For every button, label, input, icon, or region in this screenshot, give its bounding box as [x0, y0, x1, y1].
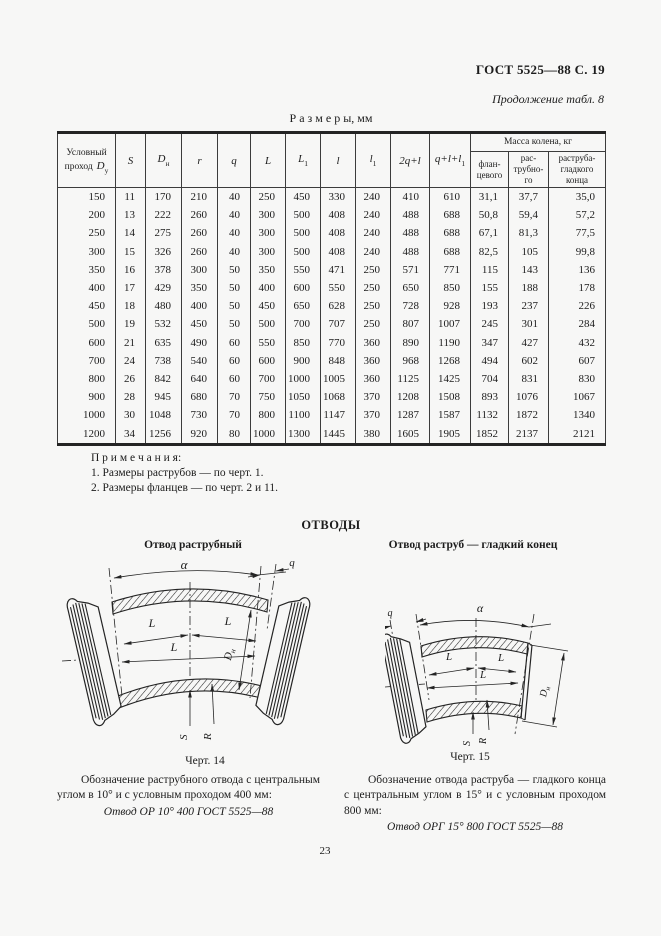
table-cell: 1208	[391, 388, 430, 406]
page-number: 23	[300, 845, 350, 857]
table-cell: 1125	[391, 370, 430, 388]
table-row: 250142752604030050040824048868867,181,37…	[58, 224, 606, 242]
table-cell: 13	[116, 206, 146, 224]
table-cell: 50	[218, 315, 251, 333]
gost-header: ГОСТ 5525—88 С. 19	[476, 62, 605, 78]
table-cell: 494	[471, 352, 509, 370]
table-cell: 640	[182, 370, 218, 388]
dim-label-L: L	[148, 616, 156, 630]
table-cell: 136	[549, 261, 606, 279]
figure-left-subtitle: Отвод раструбный	[118, 539, 268, 551]
table-cell: 240	[356, 243, 391, 261]
table-cell: 70	[218, 406, 251, 424]
table-cell: 31,1	[471, 188, 509, 207]
table-cell: 945	[146, 388, 182, 406]
table-cell: 1508	[430, 388, 471, 406]
note-item: 1. Размеры раструбов — по черт. 1.	[91, 466, 278, 481]
table-cell: 650	[391, 279, 430, 297]
table-cell: 432	[549, 334, 606, 352]
col-header-s: S	[116, 133, 146, 188]
table-cell: 1000	[58, 406, 116, 424]
table-cell: 410	[391, 188, 430, 207]
table-cell: 250	[356, 297, 391, 315]
col-header-q: q	[218, 133, 251, 188]
col-header-dn: Dн	[146, 133, 182, 188]
table-cell: 900	[286, 352, 321, 370]
table-cell: 115	[471, 261, 509, 279]
table-cell: 550	[251, 334, 286, 352]
table-cell: 1005	[321, 370, 356, 388]
table-cell: 700	[251, 370, 286, 388]
table-row: 1200341256920801000130014453801605190518…	[58, 424, 606, 444]
figure-socket-plain-bend-drawing: q α L L L Dн S R	[385, 574, 580, 752]
dimensions-table: Условный проход Dу S Dн r q L L1 l l1 2q…	[57, 131, 606, 446]
section-title-otvody: ОТВОДЫ	[57, 518, 605, 533]
table-cell: 800	[251, 406, 286, 424]
table-cell: 50	[218, 261, 251, 279]
table-cell: 15	[116, 243, 146, 261]
table-cell: 380	[356, 424, 391, 444]
table-row: 150111702104025045033024041061031,137,73…	[58, 188, 606, 207]
col-header-r: r	[182, 133, 218, 188]
dim-label-q: q	[388, 608, 393, 619]
table-cell: 408	[321, 206, 356, 224]
table-cell: 40	[218, 224, 251, 242]
dim-label-R: R	[478, 738, 489, 745]
table-cell: 200	[58, 206, 116, 224]
table-cell: 226	[549, 297, 606, 315]
table-cell: 1605	[391, 424, 430, 444]
col-header-mass-group: Масса колена, кг	[471, 133, 606, 152]
table-cell: 540	[182, 352, 218, 370]
table-cell: 650	[286, 297, 321, 315]
table-cell: 222	[146, 206, 182, 224]
designation-example: Отвод ОР 10° 400 ГОСТ 5525—88	[57, 805, 320, 820]
table-cell: 730	[182, 406, 218, 424]
table-cell: 830	[549, 370, 606, 388]
table-cell: 1445	[321, 424, 356, 444]
designation-text: Обозначение отвода раструба — гладкого к…	[344, 773, 606, 819]
table-cell: 607	[549, 352, 606, 370]
table-cell: 260	[182, 243, 218, 261]
table-cell: 900	[58, 388, 116, 406]
table-cell: 250	[251, 188, 286, 207]
table-cell: 81,3	[509, 224, 549, 242]
table-cell: 688	[430, 206, 471, 224]
table-cell: 80	[218, 424, 251, 444]
socket-right	[253, 592, 312, 725]
table-cell: 500	[286, 224, 321, 242]
table-cell: 370	[356, 388, 391, 406]
notes-block: П р и м е ч а н и я: 1. Размеры раструбо…	[91, 451, 278, 496]
table-row: 4001742935050400600550250650850155188178	[58, 279, 606, 297]
table-cell: 284	[549, 315, 606, 333]
table-cell: 210	[182, 188, 218, 207]
table-cell: 842	[146, 370, 182, 388]
dim-label-L: L	[224, 614, 232, 628]
table-cell: 831	[509, 370, 549, 388]
table-cell: 347	[471, 334, 509, 352]
table-cell: 488	[391, 243, 430, 261]
table-cell: 488	[391, 206, 430, 224]
table-cell: 704	[471, 370, 509, 388]
table-cell: 532	[146, 315, 182, 333]
table-cell: 16	[116, 261, 146, 279]
table-cell: 70	[218, 388, 251, 406]
table-cell: 550	[321, 279, 356, 297]
table-cell: 18	[116, 297, 146, 315]
table-cell: 260	[182, 224, 218, 242]
table-cell: 240	[356, 224, 391, 242]
table-cell: 330	[321, 188, 356, 207]
table-row: 300153262604030050040824048868882,510599…	[58, 243, 606, 261]
table-cell: 1048	[146, 406, 182, 424]
table-cell: 170	[146, 188, 182, 207]
col-header-L: L	[251, 133, 286, 188]
table-row: 9002894568070750105010683701208150889310…	[58, 388, 606, 406]
table-row: 5001953245050500700707250807100724530128…	[58, 315, 606, 333]
table-cell: 1256	[146, 424, 182, 444]
table-row: 4501848040050450650628250728928193237226	[58, 297, 606, 315]
table-cell: 928	[430, 297, 471, 315]
table-cell: 500	[58, 315, 116, 333]
table-cell: 178	[549, 279, 606, 297]
table-cell: 1076	[509, 388, 549, 406]
table-cell: 188	[509, 279, 549, 297]
table-cell: 300	[251, 243, 286, 261]
table-cell: 450	[182, 315, 218, 333]
table-cell: 2137	[509, 424, 549, 444]
table-cell: 250	[356, 279, 391, 297]
table-cell: 600	[286, 279, 321, 297]
table-cell: 427	[509, 334, 549, 352]
table-cell: 250	[356, 315, 391, 333]
table-cell: 300	[251, 224, 286, 242]
table-cell: 1200	[58, 424, 116, 444]
table-cell: 82,5	[471, 243, 509, 261]
table-cell: 1147	[321, 406, 356, 424]
table-cell: 1007	[430, 315, 471, 333]
table-cell: 21	[116, 334, 146, 352]
table-cell: 11	[116, 188, 146, 207]
table-cell: 400	[58, 279, 116, 297]
table-cell: 1067	[549, 388, 606, 406]
table-cell: 370	[356, 406, 391, 424]
table-cell: 890	[391, 334, 430, 352]
dim-label-L: L	[479, 669, 486, 681]
table-row: 1000301048730708001100114737012871587113…	[58, 406, 606, 424]
table-cell: 550	[286, 261, 321, 279]
designation-text: Обозначение раструбного отвода с централ…	[57, 773, 320, 804]
table-cell: 848	[321, 352, 356, 370]
table-cell: 850	[286, 334, 321, 352]
col-header-mass-socket-plain: раструба-гладкого конца	[549, 152, 606, 188]
table-cell: 1872	[509, 406, 549, 424]
table-cell: 26	[116, 370, 146, 388]
table-cell: 50	[218, 279, 251, 297]
designation-example: Отвод ОРГ 15° 800 ГОСТ 5525—88	[344, 820, 606, 835]
table-cell: 480	[146, 297, 182, 315]
col-header-dy: Условный проход Dу	[58, 133, 116, 188]
table-cell: 350	[251, 261, 286, 279]
table-cell: 1300	[286, 424, 321, 444]
table-cell: 450	[286, 188, 321, 207]
col-header-mass-socket: рас-трубно-го	[509, 152, 549, 188]
table-cell: 143	[509, 261, 549, 279]
table-cell: 378	[146, 261, 182, 279]
table-cell: 14	[116, 224, 146, 242]
table-cell: 1425	[430, 370, 471, 388]
table-row: 3501637830050350550471250571771115143136	[58, 261, 606, 279]
page: { "page": { "gost_header": "ГОСТ 5525—88…	[0, 0, 661, 936]
table-cell: 893	[471, 388, 509, 406]
dim-label-alpha: α	[477, 601, 484, 615]
table-cell: 600	[58, 334, 116, 352]
table-cell: 2121	[549, 424, 606, 444]
figure-socket-bend-drawing: α q L L L Dн S R	[62, 556, 318, 754]
table-cell: 326	[146, 243, 182, 261]
dim-label-R: R	[202, 733, 214, 741]
table-cell: 1287	[391, 406, 430, 424]
table-cell: 60	[218, 370, 251, 388]
table-cell: 50,8	[471, 206, 509, 224]
table-cell: 17	[116, 279, 146, 297]
table-cell: 301	[509, 315, 549, 333]
dim-label-alpha: α	[181, 557, 189, 572]
col-header-q-l-l1: q+l+l1	[430, 133, 471, 188]
table-cell: 1050	[286, 388, 321, 406]
table-cell: 1268	[430, 352, 471, 370]
table-cell: 600	[251, 352, 286, 370]
table-cell: 150	[58, 188, 116, 207]
table-cell: 28	[116, 388, 146, 406]
table-cell: 240	[356, 188, 391, 207]
table-cell: 680	[182, 388, 218, 406]
table-cell: 750	[251, 388, 286, 406]
table-cell: 1340	[549, 406, 606, 424]
table-cell: 807	[391, 315, 430, 333]
designation-paragraph-left: Обозначение раструбного отвода с централ…	[57, 773, 320, 820]
col-header-mass-flanged: флан-цевого	[471, 152, 509, 188]
table-row: 7002473854060600900848360968126849460260…	[58, 352, 606, 370]
table-cell: 1068	[321, 388, 356, 406]
table-cell: 1905	[430, 424, 471, 444]
col-header-l: l	[321, 133, 356, 188]
table-body: 150111702104025045033024041061031,137,73…	[58, 188, 606, 445]
table-cell: 99,8	[549, 243, 606, 261]
table-cell: 300	[58, 243, 116, 261]
table-cell: 1190	[430, 334, 471, 352]
table-cell: 850	[430, 279, 471, 297]
table-cell: 193	[471, 297, 509, 315]
table-cell: 602	[509, 352, 549, 370]
table-cell: 240	[356, 206, 391, 224]
table-cell: 500	[286, 243, 321, 261]
table-cell: 250	[58, 224, 116, 242]
dim-label-Dn: Dн	[222, 647, 238, 662]
table-cell: 610	[430, 188, 471, 207]
table-cell: 408	[321, 224, 356, 242]
table-cell: 429	[146, 279, 182, 297]
note-item: 2. Размеры фланцев — по черт. 2 и 11.	[91, 481, 278, 496]
table-cell: 628	[321, 297, 356, 315]
table-cell: 250	[356, 261, 391, 279]
table-header: Условный проход Dу S Dн r q L L1 l l1 2q…	[58, 133, 606, 188]
col-header-L1: L1	[286, 133, 321, 188]
table-cell: 67,1	[471, 224, 509, 242]
table-cell: 40	[218, 206, 251, 224]
dim-label-Dn: Dн	[538, 685, 552, 699]
table-cell: 19	[116, 315, 146, 333]
table-cell: 50	[218, 297, 251, 315]
table-cell: 155	[471, 279, 509, 297]
table-cell: 24	[116, 352, 146, 370]
table-cell: 60	[218, 352, 251, 370]
table-cell: 490	[182, 334, 218, 352]
table-cell: 300	[251, 206, 286, 224]
dim-label-S: S	[178, 734, 190, 740]
table-cell: 408	[321, 243, 356, 261]
table-cell: 920	[182, 424, 218, 444]
table-row: 6002163549060550850770360890119034742743…	[58, 334, 606, 352]
figure-left-caption: Черт. 14	[160, 755, 250, 767]
table-cell: 260	[182, 206, 218, 224]
table-cell: 40	[218, 243, 251, 261]
table-cell: 400	[251, 279, 286, 297]
table-cell: 571	[391, 261, 430, 279]
table-cell: 360	[356, 370, 391, 388]
table-cell: 34	[116, 424, 146, 444]
table-cell: 275	[146, 224, 182, 242]
table-cell: 37,7	[509, 188, 549, 207]
table-cell: 707	[321, 315, 356, 333]
table-cell: 360	[356, 334, 391, 352]
table-cell: 77,5	[549, 224, 606, 242]
table-cell: 1852	[471, 424, 509, 444]
dim-label-L: L	[445, 651, 452, 663]
table-cell: 60	[218, 334, 251, 352]
dim-label-S: S	[462, 741, 473, 746]
table-cell: 245	[471, 315, 509, 333]
table-cell: 471	[321, 261, 356, 279]
table-cell: 360	[356, 352, 391, 370]
table-cell: 500	[286, 206, 321, 224]
table-cell: 350	[182, 279, 218, 297]
table-cell: 688	[430, 224, 471, 242]
col-header-2q-l: 2q+l	[391, 133, 430, 188]
table-cell: 237	[509, 297, 549, 315]
table-continuation-note: Продолжение табл. 8	[492, 92, 604, 107]
table-title: Р а з м е р ы, мм	[57, 111, 605, 126]
table-cell: 300	[182, 261, 218, 279]
designation-paragraph-right: Обозначение отвода раструба — гладкого к…	[344, 773, 606, 836]
table-cell: 1000	[286, 370, 321, 388]
table-cell: 500	[251, 315, 286, 333]
table-cell: 700	[58, 352, 116, 370]
figure-right-caption: Черт. 15	[425, 751, 515, 763]
table-cell: 105	[509, 243, 549, 261]
figure-right-subtitle: Отвод раструб — гладкий конец	[378, 539, 568, 551]
table-cell: 57,2	[549, 206, 606, 224]
table-cell: 771	[430, 261, 471, 279]
dim-label-q: q	[289, 557, 295, 569]
table-cell: 1132	[471, 406, 509, 424]
table-cell: 700	[286, 315, 321, 333]
table-row: 8002684264060700100010053601125142570483…	[58, 370, 606, 388]
notes-title: П р и м е ч а н и я:	[91, 451, 278, 466]
table-cell: 1587	[430, 406, 471, 424]
table-cell: 968	[391, 352, 430, 370]
dim-label-L: L	[497, 652, 504, 664]
table-cell: 1100	[286, 406, 321, 424]
col-header-l1: l1	[356, 133, 391, 188]
table-cell: 728	[391, 297, 430, 315]
table-cell: 738	[146, 352, 182, 370]
table-cell: 350	[58, 261, 116, 279]
table-cell: 35,0	[549, 188, 606, 207]
table-cell: 770	[321, 334, 356, 352]
table-cell: 59,4	[509, 206, 549, 224]
table-cell: 450	[58, 297, 116, 315]
table-cell: 30	[116, 406, 146, 424]
table-cell: 40	[218, 188, 251, 207]
table-cell: 488	[391, 224, 430, 242]
table-cell: 1000	[251, 424, 286, 444]
table-cell: 800	[58, 370, 116, 388]
table-row: 200132222604030050040824048868850,859,45…	[58, 206, 606, 224]
table-cell: 450	[251, 297, 286, 315]
dim-label-L: L	[170, 640, 178, 654]
table-cell: 400	[182, 297, 218, 315]
table-cell: 635	[146, 334, 182, 352]
table-cell: 688	[430, 243, 471, 261]
